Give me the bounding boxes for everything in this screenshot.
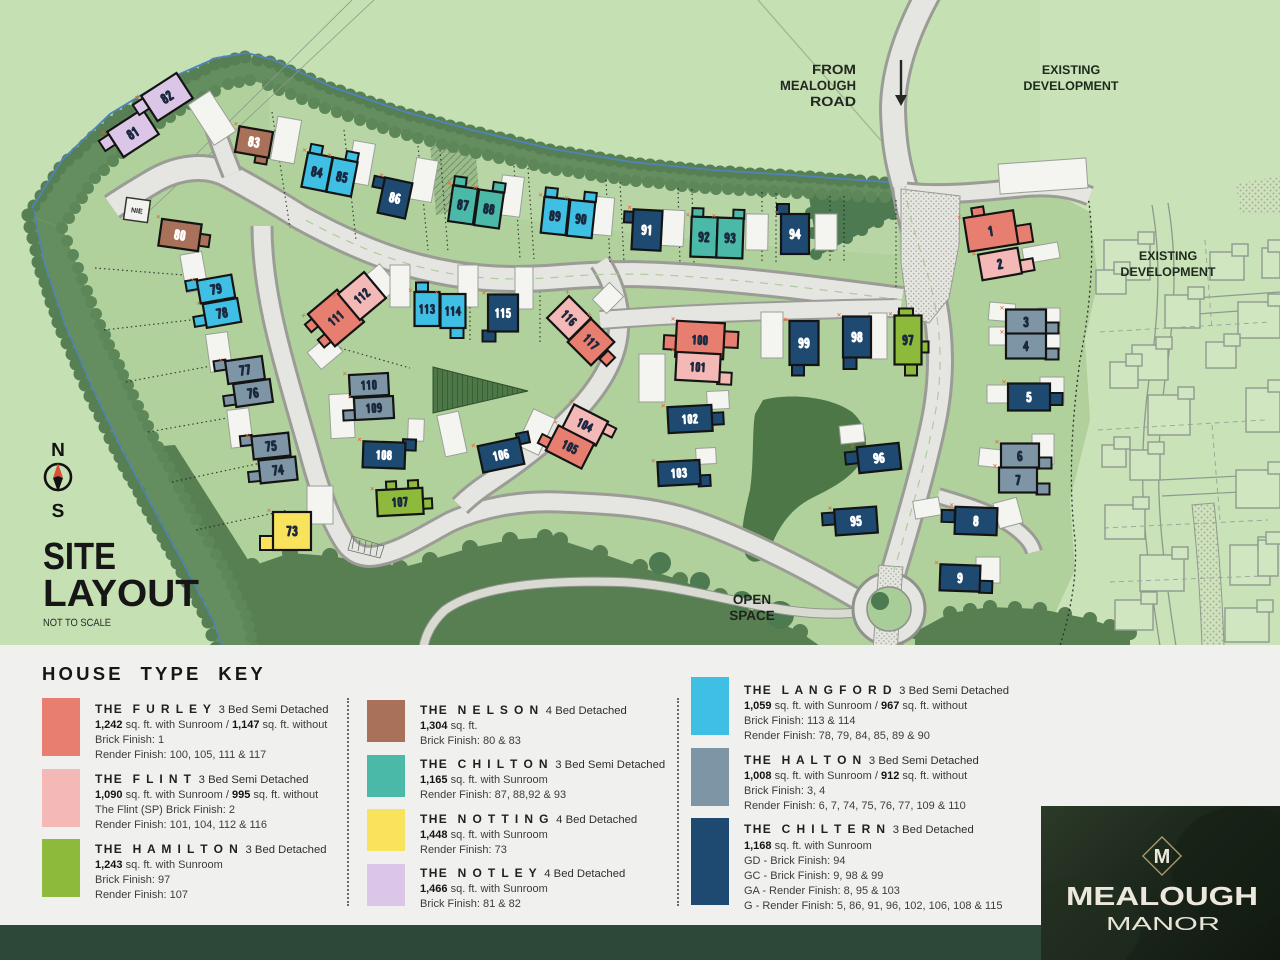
svg-text:MEALOUGH: MEALOUGH [780,78,856,93]
svg-text:×: × [995,438,1000,447]
svg-text:×: × [685,210,690,219]
svg-text:×: × [1002,378,1007,387]
svg-text:×: × [370,484,375,493]
svg-text:×: × [934,558,939,567]
svg-text:×: × [711,211,716,220]
svg-text:×: × [949,501,954,510]
svg-text:S: S [52,501,65,522]
svg-text:SPACE: SPACE [729,608,775,623]
svg-text:×: × [482,289,487,298]
svg-text:×: × [434,288,439,297]
svg-text:MANOR: MANOR [1106,914,1220,934]
svg-text:×: × [888,310,893,319]
svg-text:EXISTING: EXISTING [1042,63,1100,77]
svg-text:×: × [670,346,675,355]
svg-text:×: × [357,435,362,444]
svg-text:NOT TO SCALE: NOT TO SCALE [43,617,111,629]
svg-text:×: × [408,286,413,295]
svg-text:×: × [342,369,347,378]
svg-text:×: × [267,506,272,515]
svg-text:×: × [627,203,632,212]
svg-text:FROM: FROM [812,62,856,77]
svg-text:×: × [775,208,780,217]
svg-text:LAYOUT: LAYOUT [43,573,199,615]
svg-text:EXISTING: EXISTING [1139,249,1197,263]
svg-text:DEVELOPMENT: DEVELOPMENT [1120,265,1216,279]
svg-text:DEVELOPMENT: DEVELOPMENT [1023,79,1119,93]
svg-text:×: × [837,311,842,320]
svg-text:N: N [51,440,65,461]
svg-text:×: × [783,315,788,324]
svg-text:ROAD: ROAD [810,94,856,109]
svg-text:OPEN: OPEN [733,592,771,607]
svg-text:SITE: SITE [43,536,116,578]
svg-text:×: × [347,392,352,401]
svg-text:MEALOUGH: MEALOUGH [1066,881,1258,911]
svg-text:×: × [993,462,998,471]
svg-text:×: × [1000,304,1005,313]
svg-text:×: × [1000,328,1005,337]
svg-text:×: × [661,401,666,410]
svg-text:×: × [651,456,656,465]
svg-text:×: × [670,314,675,323]
svg-text:M: M [1154,846,1171,868]
